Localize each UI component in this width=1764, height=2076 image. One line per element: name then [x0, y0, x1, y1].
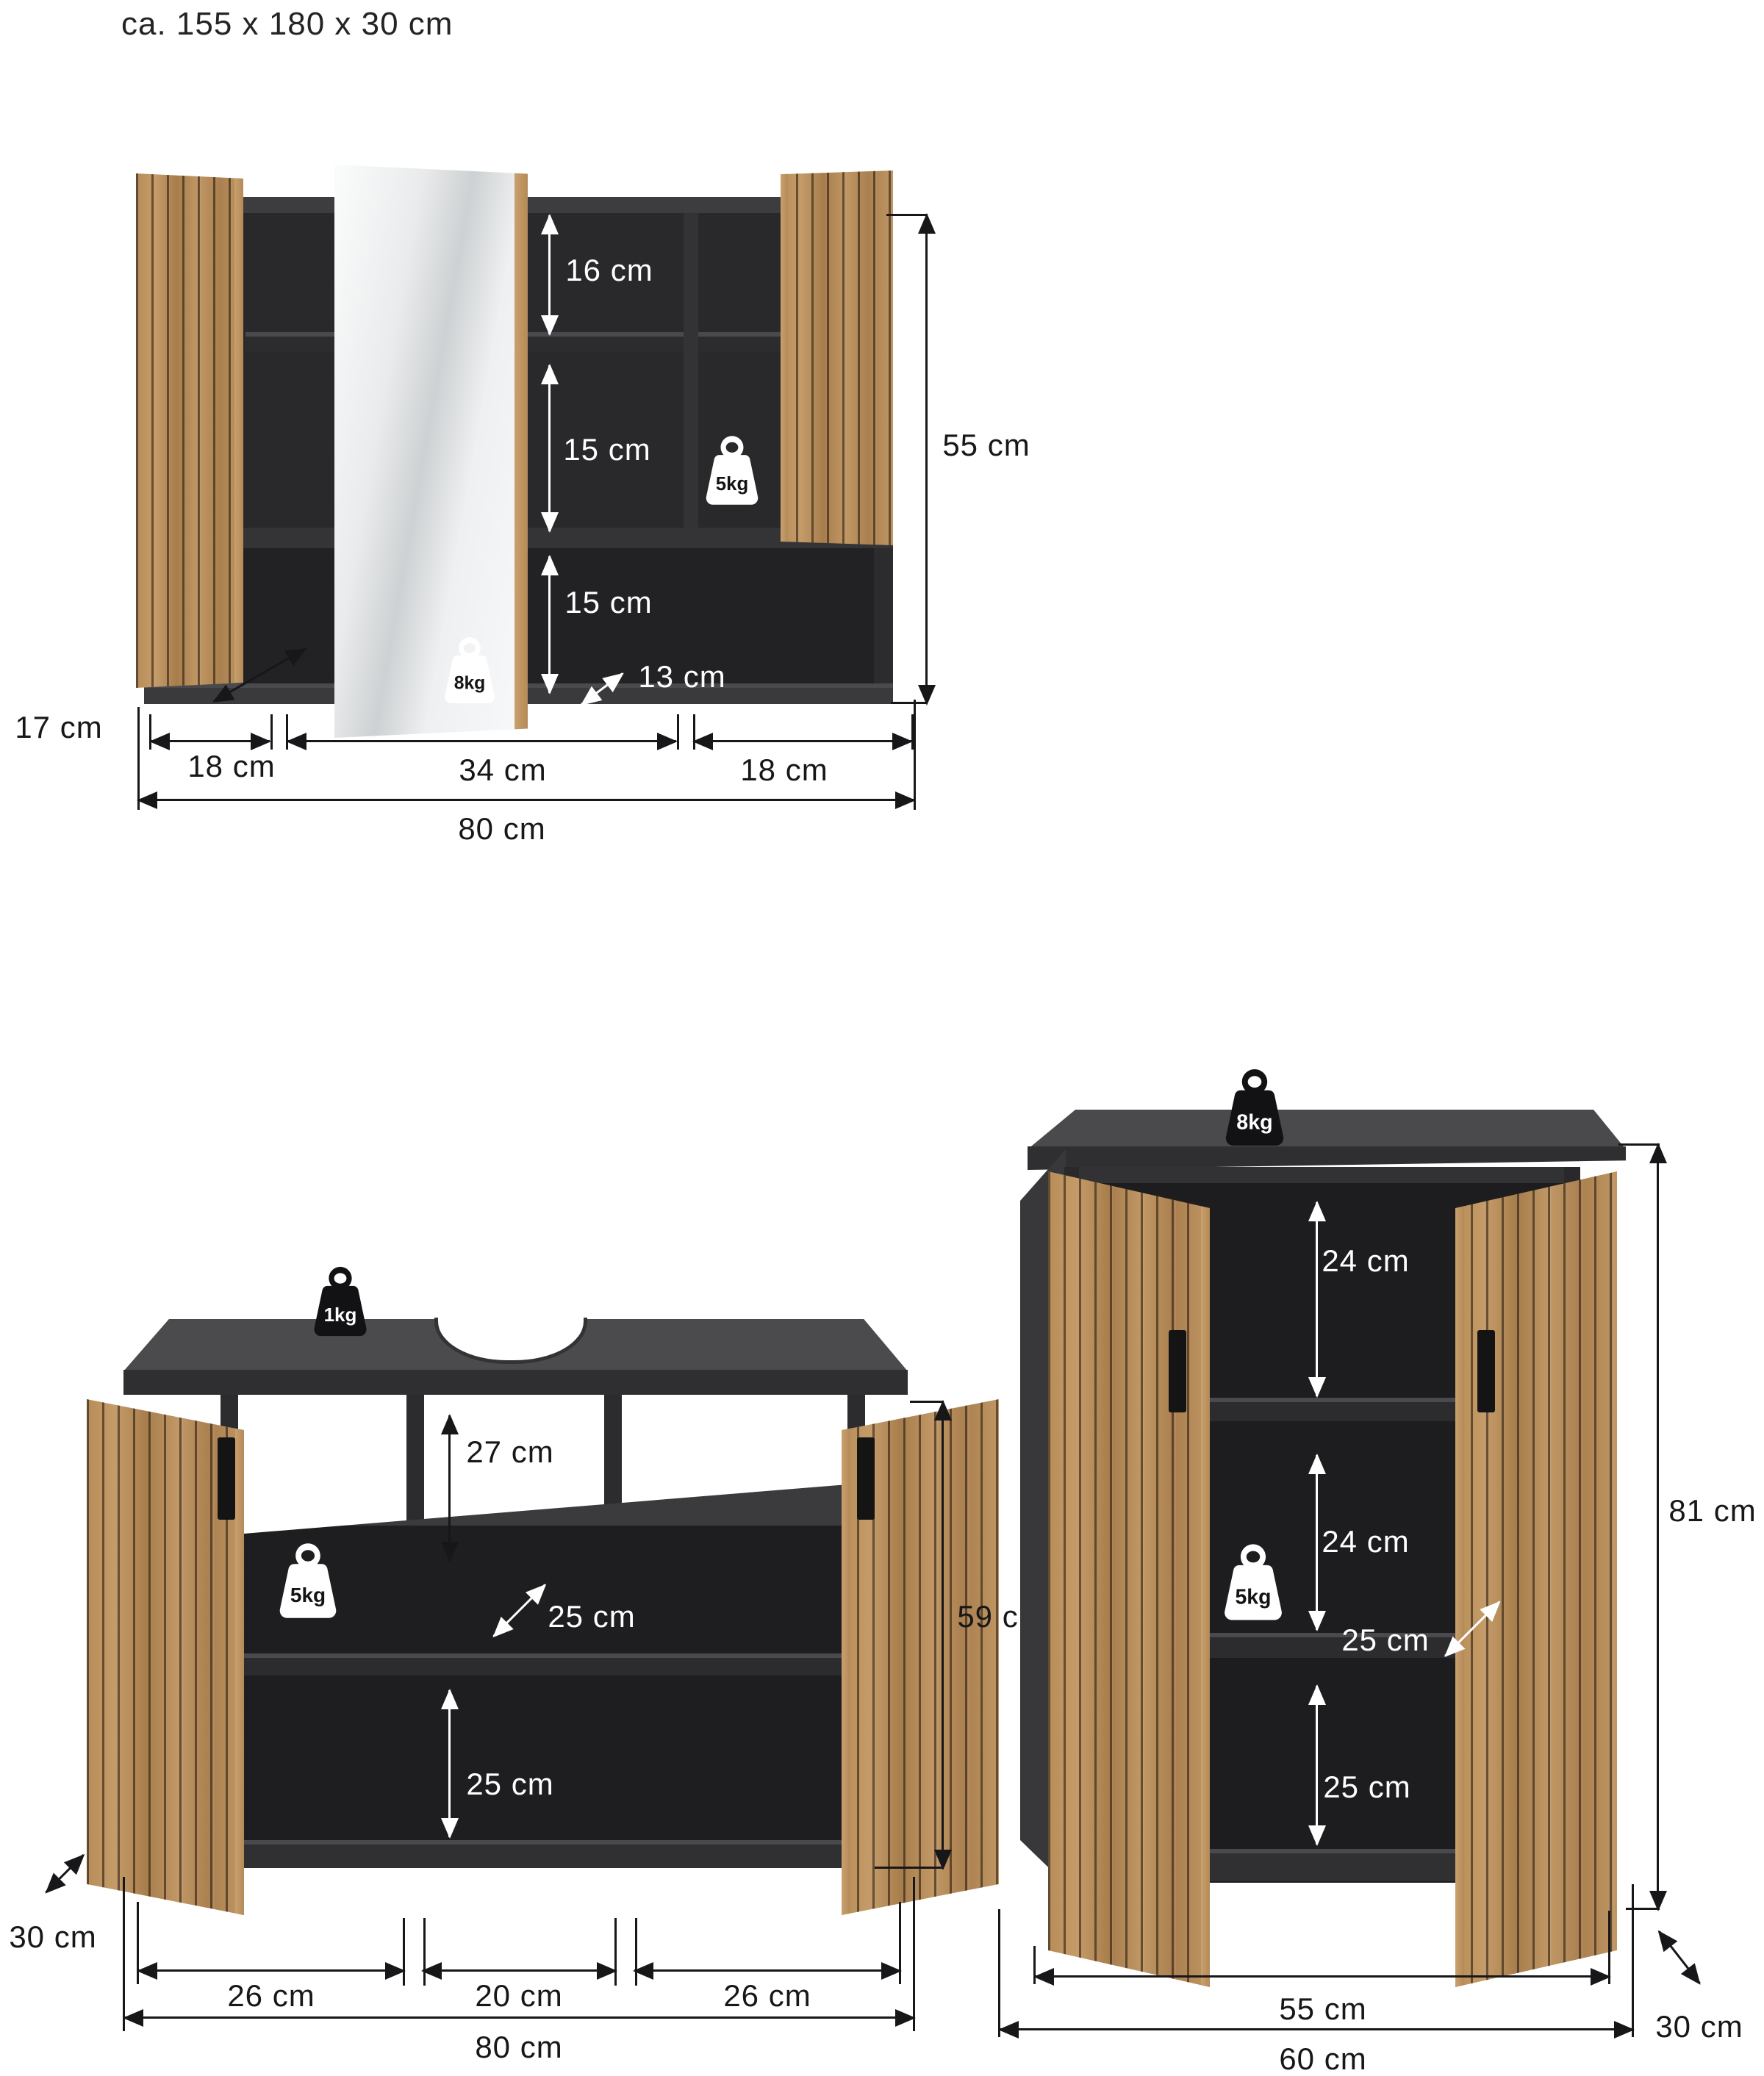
- load-badge-5kg: 5kg: [1222, 1543, 1285, 1623]
- dim-label-55cm-width: 55 cm: [1279, 1991, 1366, 2027]
- dim-arrow-26cm-right: [634, 1969, 900, 1972]
- dim-label-15cm-middle: 15 cm: [563, 432, 650, 467]
- vanity-right-door-handle: [857, 1437, 875, 1520]
- vanity-bottom-board: [220, 1840, 865, 1868]
- mirror-cabinet-divider: [684, 213, 698, 531]
- tick: [913, 1877, 915, 2031]
- side-cabinet-right-door-handle: [1477, 1330, 1495, 1412]
- dim-label-25cm-bottom: 25 cm: [1323, 1770, 1410, 1805]
- page-title: ca. 155 x 180 x 30 cm: [121, 6, 453, 43]
- dim-arrow-55cm-width: [1035, 1975, 1610, 1978]
- svg-text:5kg: 5kg: [1236, 1585, 1272, 1609]
- dim-label-17cm: 17 cm: [15, 710, 102, 745]
- load-badge-8kg: 8kg: [440, 636, 500, 705]
- dim-arrow-80cm: [138, 799, 914, 801]
- side-cabinet-left-door: [1048, 1171, 1210, 1987]
- tick: [998, 1909, 1000, 2037]
- side-cabinet-right-door: [1455, 1171, 1617, 1987]
- dim-label-26cm-left: 26 cm: [227, 1978, 315, 2014]
- load-badge-8kg-top: 8kg: [1223, 1067, 1286, 1149]
- dim-label-30cm: 30 cm: [9, 1919, 96, 1955]
- dim-arrow-26cm-left: [138, 1969, 404, 1972]
- dim-label-24cm-middle: 24 cm: [1322, 1524, 1409, 1559]
- dim-arrow-30cm: [1658, 1930, 1701, 1984]
- dim-label-24cm-top: 24 cm: [1322, 1243, 1409, 1279]
- dim-arrow-24cm-middle: [1316, 1455, 1318, 1630]
- door-edge: [235, 1399, 244, 1915]
- dim-arrow-25cm-bottom: [1316, 1686, 1318, 1845]
- svg-text:5kg: 5kg: [290, 1584, 326, 1606]
- door-edge: [781, 170, 788, 545]
- svg-text:5kg: 5kg: [716, 474, 748, 495]
- vanity-shelf: [238, 1653, 847, 1675]
- dim-label-20cm: 20 cm: [475, 1978, 562, 2014]
- svg-text:8kg: 8kg: [454, 674, 486, 694]
- tick: [123, 1877, 125, 2031]
- load-badge-5kg: 5kg: [702, 435, 762, 507]
- side-cabinet-top-rail: [1064, 1167, 1580, 1183]
- dim-arrow-15cm-shelf: [548, 556, 551, 693]
- dim-arrow-60cm: [1000, 2028, 1633, 2030]
- load-badge-1kg: 1kg: [312, 1261, 369, 1343]
- mirror-cabinet-left-shelf: [245, 332, 334, 351]
- door-edge: [842, 1399, 850, 1915]
- dim-label-55cm: 55 cm: [942, 428, 1030, 463]
- dim-arrow-80cm-vanity: [124, 2016, 914, 2019]
- door-edge: [1201, 1171, 1210, 1987]
- dim-arrow-15cm-middle: [548, 365, 551, 531]
- dim-arrow-81cm: [1657, 1144, 1659, 1910]
- dim-arrow-30cm: [45, 1854, 84, 1893]
- dim-label-15cm-shelf: 15 cm: [564, 585, 652, 620]
- dim-label-60cm: 60 cm: [1279, 2041, 1366, 2076]
- side-cabinet-top-surface: [1028, 1110, 1626, 1149]
- dim-label-25cm-depth: 25 cm: [548, 1599, 635, 1634]
- dim-label-27cm: 27 cm: [466, 1434, 553, 1470]
- mirror-cabinet-left-door: [136, 173, 243, 688]
- door-edge: [234, 173, 243, 688]
- dim-arrow-20cm: [423, 1969, 616, 1972]
- dim-label-18cm-right: 18 cm: [740, 753, 828, 788]
- dim-label-80cm-vanity: 80 cm: [475, 2030, 562, 2065]
- vanity-left-door-handle: [218, 1437, 235, 1520]
- dim-label-25cm-depth: 25 cm: [1341, 1623, 1429, 1658]
- dim-arrow-27cm: [448, 1415, 451, 1561]
- door-edge: [1455, 1171, 1464, 1987]
- dim-arrow-16cm: [548, 215, 551, 334]
- dim-label-81cm: 81 cm: [1668, 1493, 1756, 1529]
- furniture-dimension-diagram: ca. 155 x 180 x 30 cm 8kg 5kg: [0, 0, 1764, 2076]
- svg-text:1kg: 1kg: [324, 1304, 357, 1326]
- tick: [1632, 1884, 1634, 2037]
- svg-text:8kg: 8kg: [1236, 1111, 1272, 1135]
- dim-arrow-25cm-bottom: [448, 1690, 451, 1837]
- dim-label-80cm: 80 cm: [458, 811, 545, 847]
- vanity-top-front-edge: [123, 1370, 908, 1395]
- mirror-cabinet-right-door: [781, 170, 893, 545]
- mirror-door-edge: [514, 165, 528, 738]
- dim-label-13cm: 13 cm: [638, 659, 725, 694]
- load-badge-5kg: 5kg: [277, 1542, 339, 1621]
- dim-arrow-18cm-right: [694, 740, 911, 742]
- dim-label-30cm: 30 cm: [1655, 2009, 1743, 2044]
- dim-arrow-34cm: [287, 740, 676, 742]
- dim-label-25cm-bottom: 25 cm: [466, 1767, 553, 1802]
- dim-arrow-55cm: [925, 215, 928, 704]
- side-cabinet-left-door-handle: [1169, 1330, 1186, 1412]
- dim-label-26cm-right: 26 cm: [723, 1978, 811, 2014]
- dim-label-18cm-left: 18 cm: [187, 749, 275, 784]
- dim-arrow-59cm: [942, 1401, 944, 1869]
- dim-label-34cm: 34 cm: [459, 753, 546, 788]
- dim-arrow-18cm-left: [151, 740, 270, 742]
- mirror-cabinet-lower-right-wall: [874, 548, 893, 704]
- dim-label-16cm: 16 cm: [565, 253, 653, 288]
- dim-arrow-24cm-top: [1316, 1202, 1318, 1396]
